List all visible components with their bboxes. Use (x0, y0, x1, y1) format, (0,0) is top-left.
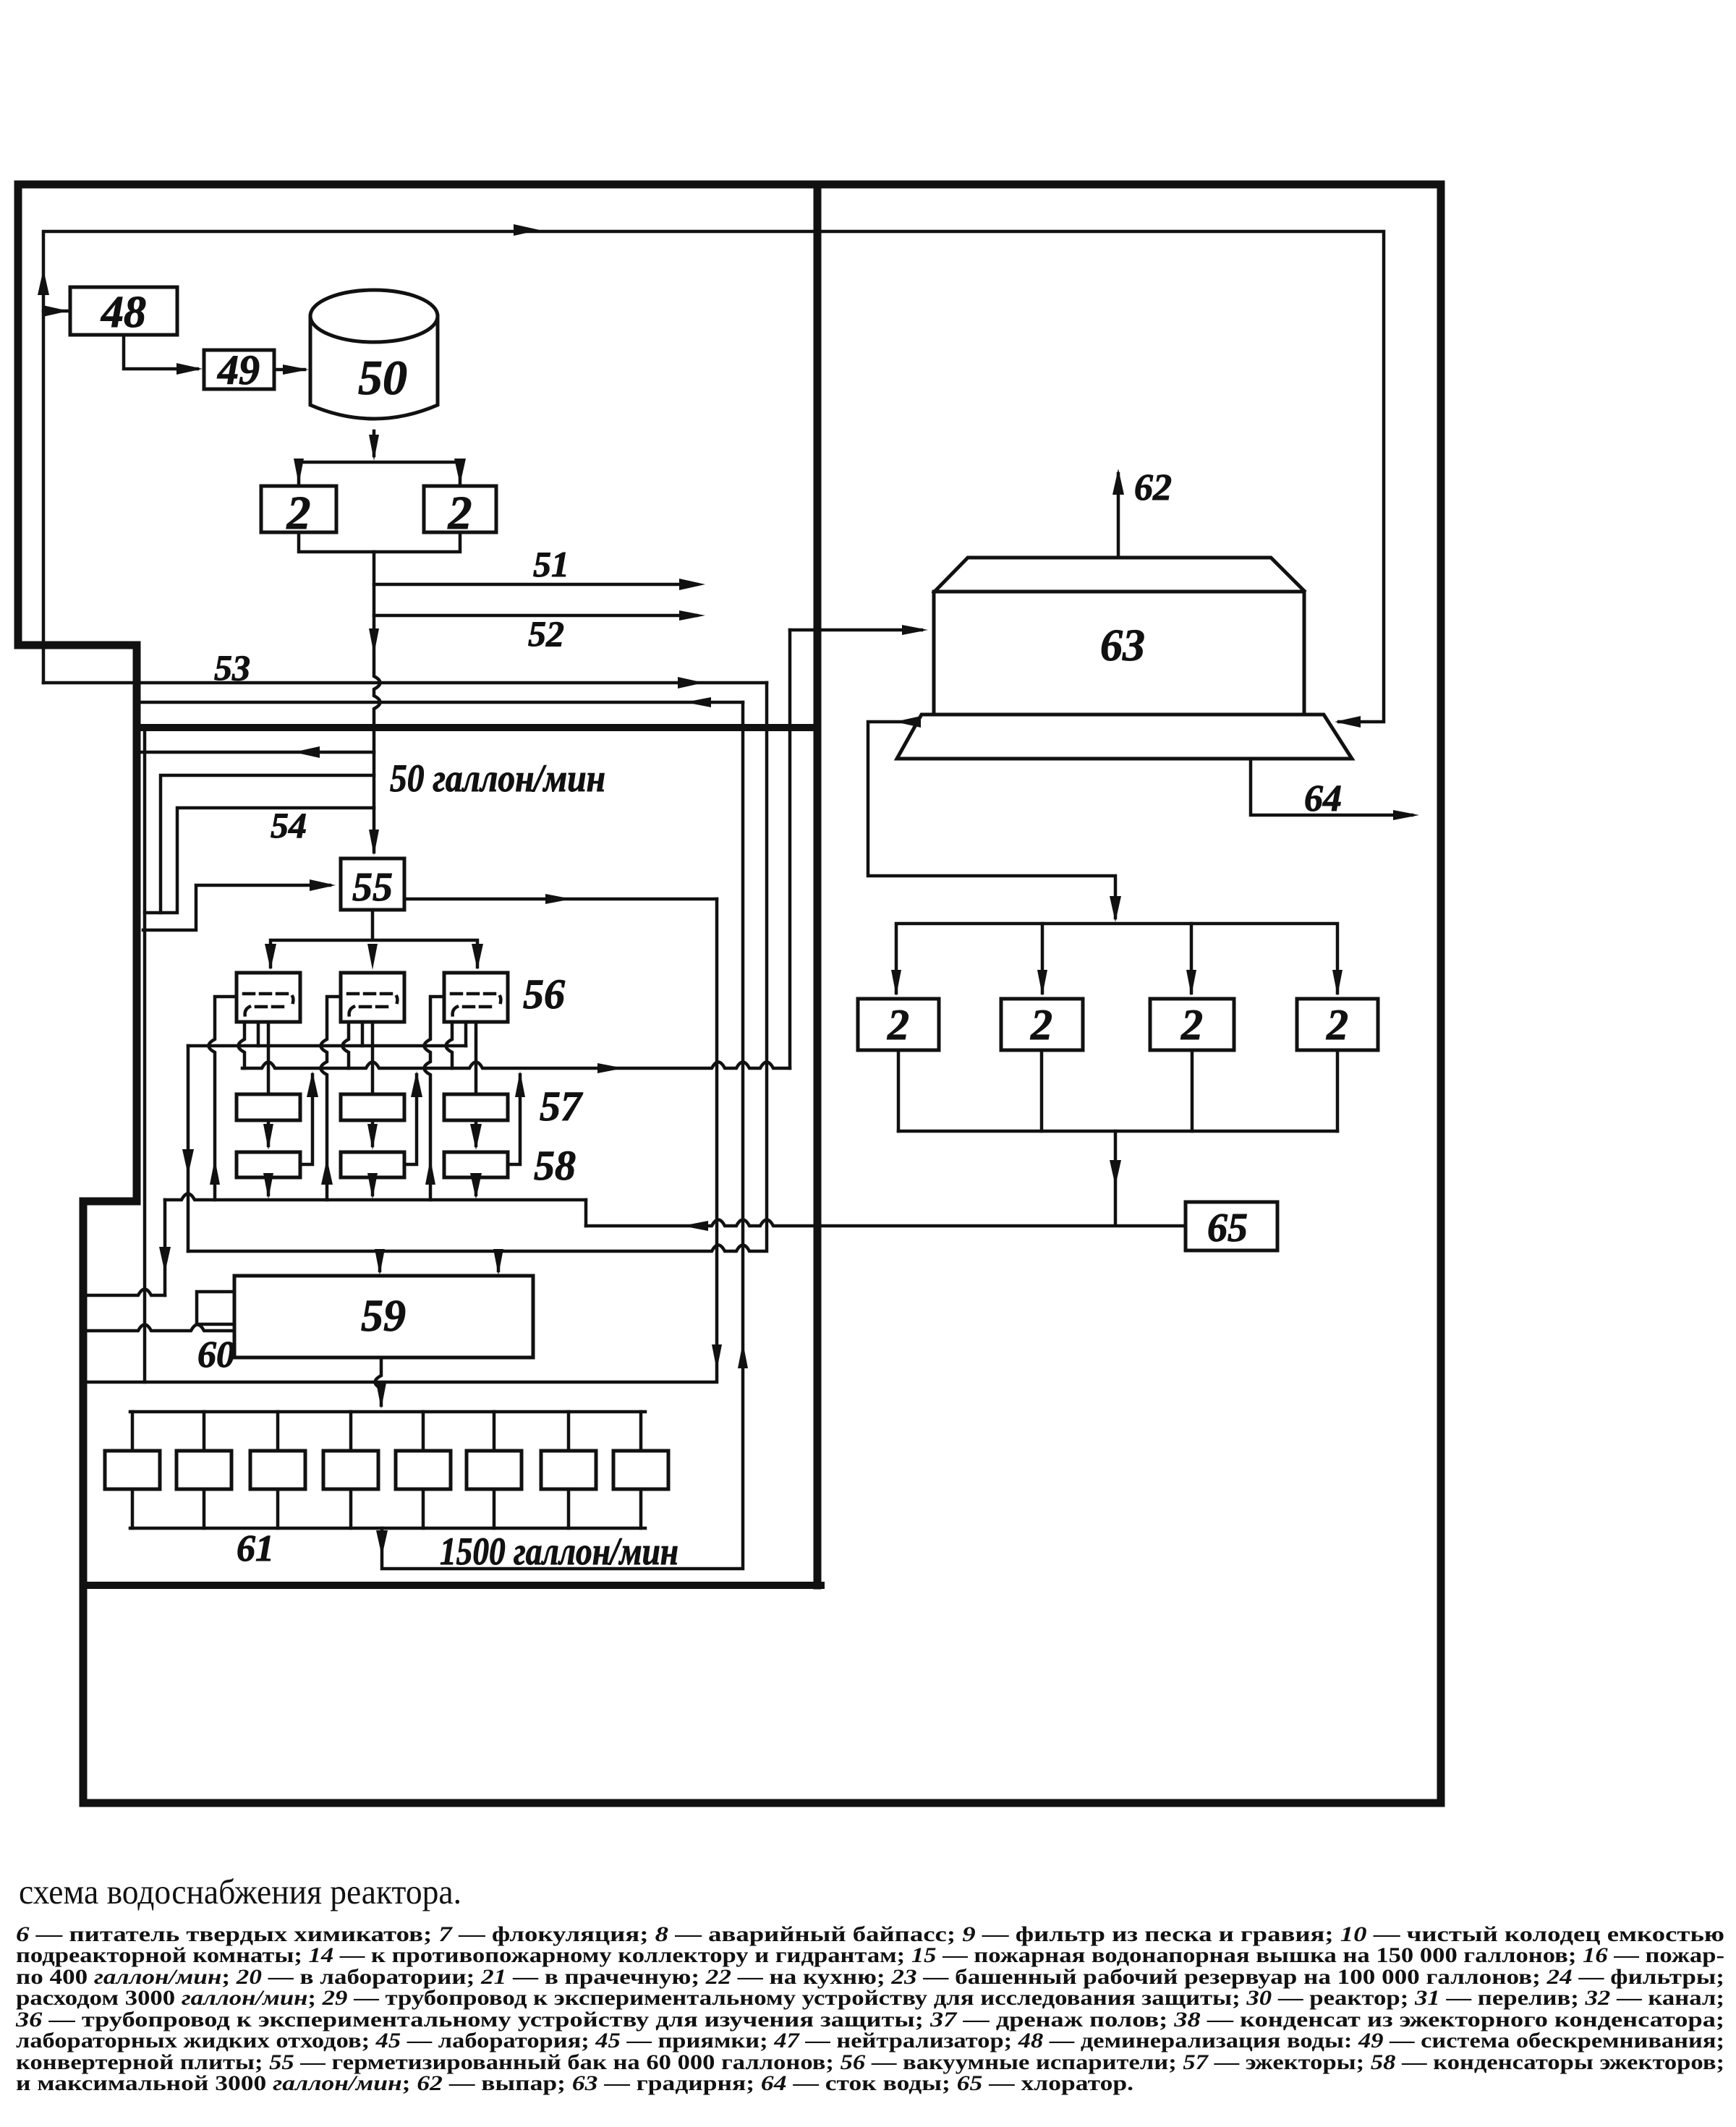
svg-text:57: 57 (540, 1083, 583, 1130)
svg-text:58: 58 (534, 1142, 576, 1189)
svg-text:подреакторной комнаты; 14 — к: подреакторной комнаты; 14 — к противопож… (16, 1943, 1724, 1967)
svg-text:48: 48 (101, 288, 146, 337)
svg-text:1500 галлон/мин: 1500 галлон/мин (440, 1530, 678, 1573)
svg-text:2: 2 (1326, 1001, 1348, 1049)
svg-text:65: 65 (1207, 1206, 1248, 1250)
svg-text:2: 2 (1030, 1001, 1052, 1049)
svg-text:расходом 3000 галлон/мин; 29 —: расходом 3000 галлон/мин; 29 — трубопров… (16, 1986, 1724, 2010)
svg-text:49: 49 (217, 346, 260, 393)
svg-text:54: 54 (271, 805, 307, 845)
svg-text:60: 60 (197, 1334, 235, 1376)
svg-text:2: 2 (887, 1001, 909, 1049)
svg-text:63: 63 (1100, 621, 1145, 670)
svg-text:лабораторных жидких отходов; 4: лабораторных жидких отходов; 45 — лабора… (16, 2029, 1724, 2053)
svg-text:и максимальной 3000 галлон/мин: и максимальной 3000 галлон/мин; 62 — вып… (16, 2071, 1133, 2095)
svg-text:53: 53 (214, 647, 250, 688)
svg-text:схема водоснабжения реактора.: схема водоснабжения реактора. (19, 1872, 461, 1911)
svg-text:56: 56 (523, 971, 565, 1018)
svg-text:55: 55 (352, 865, 393, 910)
svg-text:51: 51 (533, 544, 569, 584)
svg-text:50 галлон/мин: 50 галлон/мин (390, 756, 605, 800)
svg-text:52: 52 (528, 613, 564, 654)
svg-text:50: 50 (358, 350, 407, 405)
svg-text:61: 61 (237, 1528, 274, 1569)
svg-text:62: 62 (1134, 467, 1172, 508)
svg-text:2: 2 (1180, 1001, 1203, 1049)
svg-text:64: 64 (1304, 778, 1342, 819)
svg-text:59: 59 (361, 1292, 406, 1341)
